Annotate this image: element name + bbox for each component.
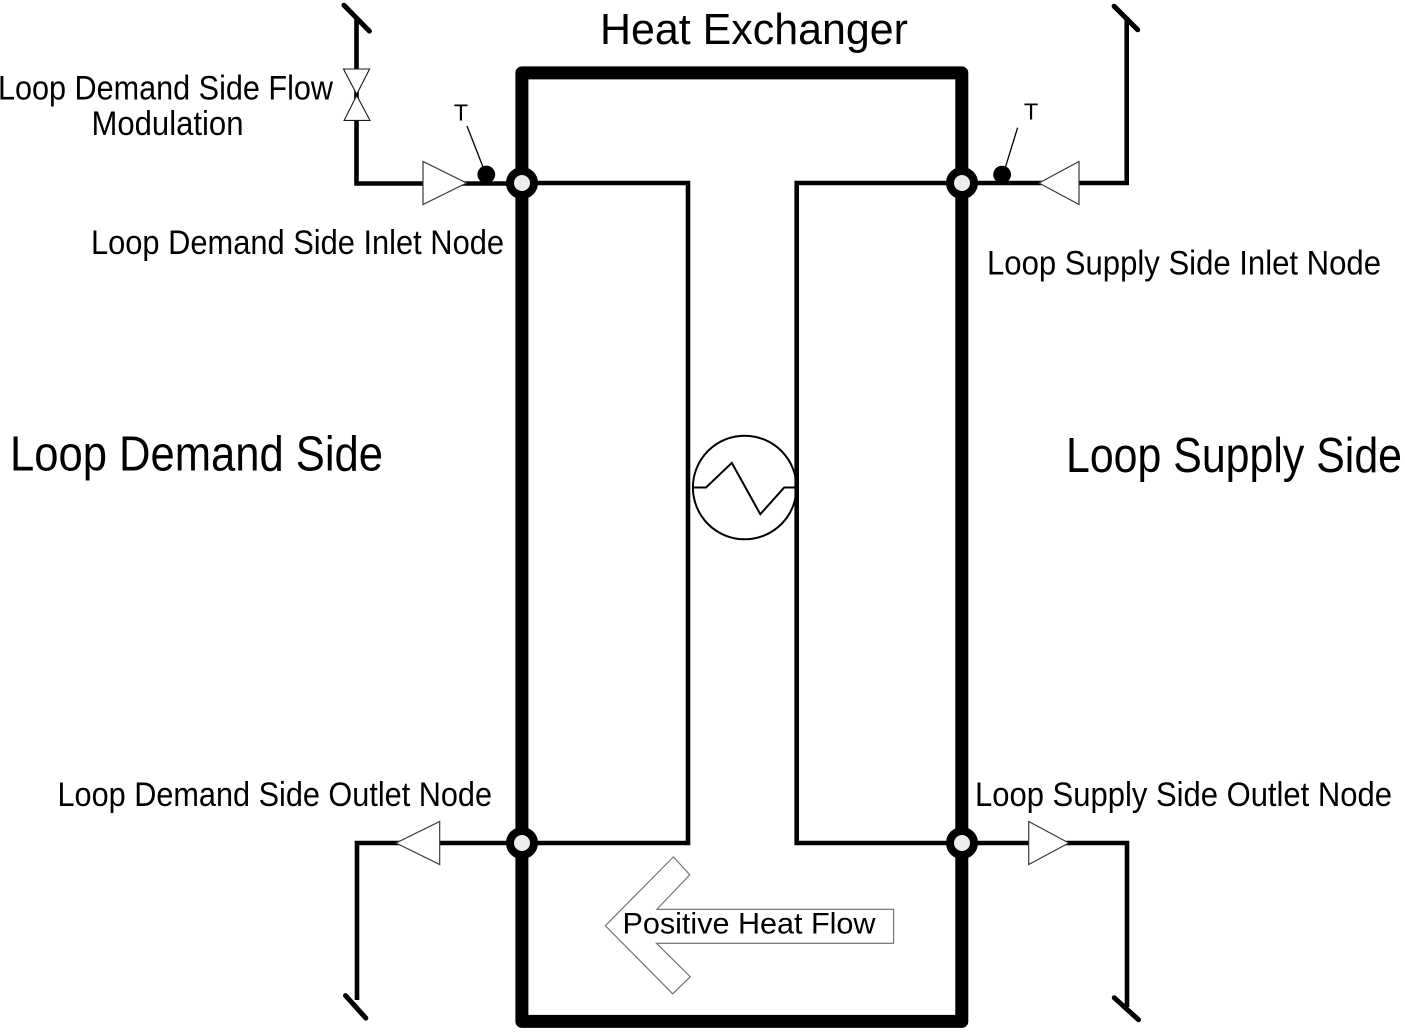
svg-text:Loop Demand Side Inlet Node: Loop Demand Side Inlet Node	[91, 224, 504, 262]
svg-text:T: T	[454, 99, 468, 125]
svg-text:Loop Supply Side: Loop Supply Side	[1066, 428, 1402, 483]
svg-text:Loop Demand Side: Loop Demand Side	[10, 427, 383, 482]
svg-text:Modulation: Modulation	[92, 105, 244, 143]
svg-text:Positive Heat Flow: Positive Heat Flow	[623, 908, 876, 941]
svg-text:T: T	[1024, 99, 1038, 125]
svg-text:Loop Demand Side Flow: Loop Demand Side Flow	[0, 70, 333, 108]
svg-text:Loop Supply Side Outlet Node: Loop Supply Side Outlet Node	[975, 776, 1392, 814]
svg-text:Heat Exchanger: Heat Exchanger	[600, 5, 908, 54]
svg-text:Loop Supply Side Inlet Node: Loop Supply Side Inlet Node	[987, 245, 1381, 283]
svg-text:Loop Demand Side Outlet Node: Loop Demand Side Outlet Node	[58, 776, 493, 814]
